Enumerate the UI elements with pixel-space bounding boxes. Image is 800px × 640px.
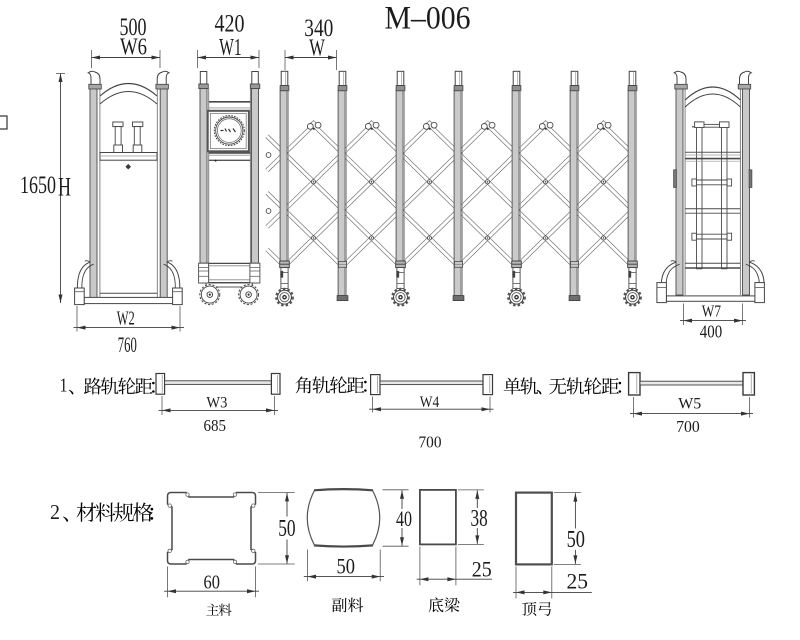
svg-text:1650: 1650 [20, 172, 56, 199]
svg-text:W4: W4 [420, 394, 440, 411]
svg-text:400: 400 [700, 322, 722, 342]
svg-text:50: 50 [567, 527, 585, 553]
svg-text:700: 700 [676, 417, 700, 436]
svg-text:W3: W3 [206, 394, 227, 411]
svg-text:W1: W1 [219, 35, 242, 61]
svg-text:50: 50 [278, 516, 295, 542]
svg-text:760: 760 [118, 332, 137, 357]
svg-text:1: 1 [60, 375, 68, 397]
svg-text:2: 2 [50, 500, 60, 524]
svg-text:38: 38 [471, 506, 488, 532]
svg-text:25: 25 [472, 556, 492, 581]
svg-text:700: 700 [419, 433, 442, 452]
svg-text:50: 50 [337, 554, 356, 579]
svg-text:420: 420 [215, 11, 245, 38]
svg-text:25: 25 [566, 568, 588, 593]
svg-text:685: 685 [204, 416, 227, 435]
svg-text:40: 40 [396, 506, 412, 531]
svg-text:M–006: M–006 [385, 0, 471, 36]
svg-text:W: W [309, 36, 325, 62]
svg-text:W5: W5 [678, 396, 701, 413]
svg-text:W2: W2 [117, 308, 135, 330]
svg-text:W6: W6 [120, 35, 147, 61]
svg-text:W7: W7 [702, 301, 722, 320]
svg-text:H: H [58, 173, 71, 202]
svg-text:60: 60 [204, 572, 220, 594]
